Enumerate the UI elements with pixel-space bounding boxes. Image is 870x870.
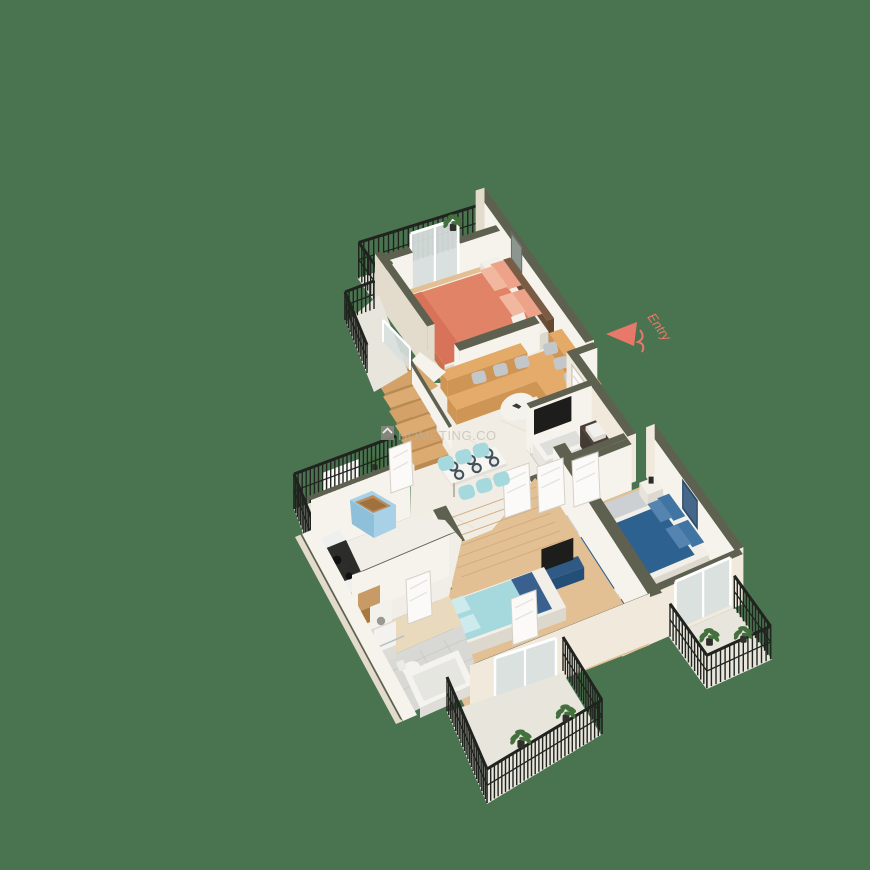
svg-text:HOMETING.CO: HOMETING.CO bbox=[398, 428, 497, 443]
